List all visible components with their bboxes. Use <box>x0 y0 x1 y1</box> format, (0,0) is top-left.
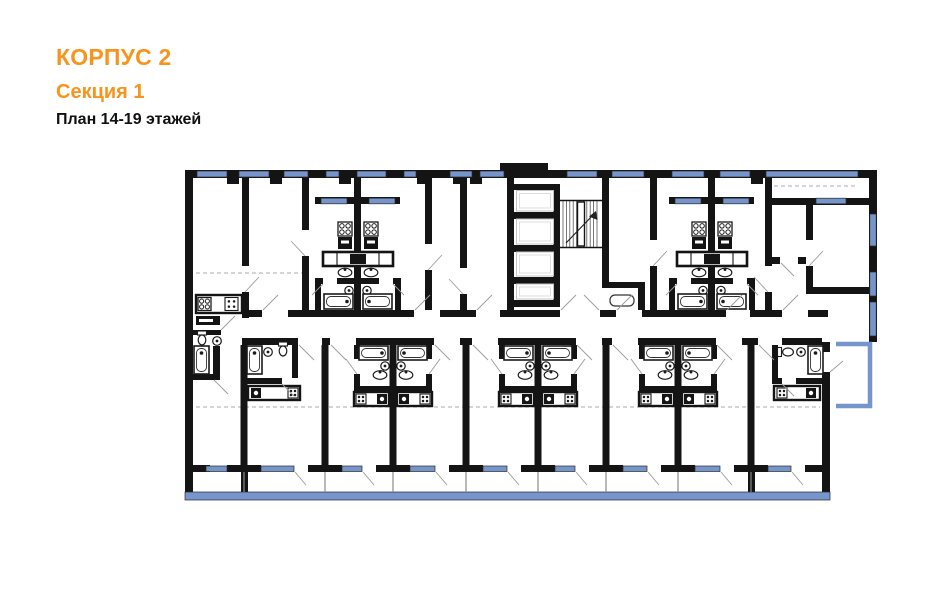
window <box>623 466 647 472</box>
wall <box>661 465 695 472</box>
wall <box>270 178 282 184</box>
wall <box>417 178 429 184</box>
sink-icon <box>518 371 532 380</box>
window <box>483 466 507 472</box>
wall <box>748 345 755 465</box>
bathtub-icon <box>683 346 712 360</box>
door-swing <box>436 472 447 485</box>
sink-icon <box>364 268 378 277</box>
wall <box>470 178 482 184</box>
window <box>555 466 575 472</box>
wall <box>356 338 434 345</box>
wall <box>514 277 556 284</box>
wall <box>805 465 822 472</box>
window <box>870 214 876 246</box>
wall <box>806 287 877 294</box>
window <box>410 466 435 472</box>
door-swing <box>792 472 803 485</box>
wall <box>675 345 682 465</box>
wall <box>449 465 483 472</box>
bathtub-icon <box>194 346 209 374</box>
door-swing <box>561 295 576 310</box>
window <box>675 198 701 204</box>
wall <box>772 378 782 384</box>
staircase-icon <box>560 201 602 248</box>
wall <box>460 178 467 268</box>
door-swing <box>291 241 305 256</box>
elevator-shaft <box>517 284 554 299</box>
wall <box>602 282 645 288</box>
door-swing <box>717 345 732 360</box>
wall <box>808 310 828 317</box>
kitchen-counter <box>774 386 820 400</box>
wall <box>460 294 467 310</box>
door-swing <box>584 295 599 310</box>
wall <box>500 163 548 171</box>
kitchen-counter <box>196 295 242 325</box>
wall <box>602 178 609 282</box>
sink-icon <box>373 371 387 380</box>
elevator-shaft <box>517 191 554 212</box>
door-swing <box>363 472 374 485</box>
bathtub-icon <box>543 346 572 360</box>
wall <box>498 338 576 345</box>
toilet-icon <box>778 348 794 357</box>
washing-machine-icon <box>542 362 550 370</box>
door-swing <box>428 255 442 270</box>
window <box>816 198 846 204</box>
window <box>357 171 386 177</box>
wall <box>425 178 432 244</box>
washing-machine-icon <box>397 362 405 370</box>
window <box>284 171 308 177</box>
window <box>197 171 227 177</box>
bathtub-icon <box>678 294 707 309</box>
door-swing <box>429 359 440 374</box>
wall <box>453 178 465 184</box>
wall <box>806 266 813 287</box>
door-swing <box>653 251 667 266</box>
door-swing <box>491 359 502 374</box>
sink-icon <box>544 371 558 380</box>
door-swing <box>714 359 725 374</box>
bathtub-icon <box>359 346 388 360</box>
wall <box>463 345 470 465</box>
wall <box>242 338 298 345</box>
wall <box>322 345 329 465</box>
bathtub-icon <box>504 346 533 360</box>
door-swing <box>631 359 642 374</box>
wall <box>213 346 220 374</box>
door-swing <box>435 345 450 360</box>
wall <box>288 310 414 317</box>
wall <box>514 300 556 307</box>
wall <box>751 178 763 184</box>
wall <box>600 310 616 317</box>
window <box>870 302 876 336</box>
balcony-outline <box>836 344 870 406</box>
wall <box>242 178 249 266</box>
door-swing <box>508 472 519 485</box>
window <box>672 171 704 177</box>
wall <box>782 338 822 345</box>
door-swing <box>648 472 659 485</box>
window <box>695 466 720 472</box>
washing-machine-icon <box>682 362 690 370</box>
wall <box>642 310 726 317</box>
wall <box>796 378 822 384</box>
washing-machine-icon <box>526 362 534 370</box>
wall <box>339 178 351 184</box>
floor-plan <box>0 0 941 600</box>
wall <box>500 310 560 317</box>
sink-icon <box>718 268 732 277</box>
page: КОРПУС 2 Секция 1 План 14-19 этажей <box>0 0 941 600</box>
door-swing <box>263 295 278 310</box>
wall <box>650 178 657 240</box>
bathtub-icon <box>247 346 262 374</box>
sink-icon <box>399 371 413 380</box>
window <box>239 171 269 177</box>
door-swing <box>473 345 488 360</box>
elevator-shaft <box>517 219 554 244</box>
wall <box>185 170 193 500</box>
wall <box>521 465 555 472</box>
sink-icon <box>797 348 806 357</box>
door-swing <box>299 345 314 360</box>
bathtub-icon <box>717 294 746 309</box>
wall <box>460 338 472 345</box>
wall <box>742 338 758 345</box>
door-swing <box>759 345 774 360</box>
window <box>369 198 395 204</box>
door-swing <box>295 472 306 485</box>
wall <box>772 257 780 264</box>
window <box>326 171 339 177</box>
sink-icon <box>213 337 222 346</box>
wall <box>390 345 397 465</box>
wall <box>302 178 309 230</box>
window <box>206 466 227 472</box>
door-swing <box>576 472 587 485</box>
door-swing <box>449 279 463 294</box>
wall <box>227 178 239 184</box>
door-swing <box>754 277 768 292</box>
wall <box>603 345 610 465</box>
door-swing <box>221 316 235 330</box>
window <box>723 198 749 204</box>
wall <box>638 338 716 345</box>
door-swing <box>214 380 228 394</box>
window <box>261 466 294 472</box>
door-swing <box>781 263 794 276</box>
wall <box>589 465 623 472</box>
sink-icon <box>658 371 672 380</box>
sink-icon <box>692 268 706 277</box>
door-swing <box>613 345 628 360</box>
window <box>720 171 750 177</box>
wall <box>227 465 261 472</box>
door-swing <box>245 277 259 292</box>
window <box>870 272 876 296</box>
wall <box>535 345 542 465</box>
kitchen-counter <box>323 252 393 266</box>
kitchen-counter <box>677 252 747 266</box>
wall <box>765 292 772 310</box>
window <box>567 171 597 177</box>
wall <box>242 310 262 317</box>
window <box>480 171 504 177</box>
window <box>450 171 472 177</box>
wall <box>650 266 657 310</box>
window <box>342 466 362 472</box>
wall <box>602 338 612 345</box>
wall <box>822 372 830 500</box>
door-swing <box>577 345 592 360</box>
door-swing <box>574 359 585 374</box>
door-swing <box>783 295 798 310</box>
wall <box>440 310 476 317</box>
sink-icon <box>338 268 352 277</box>
washing-machine-icon <box>666 362 674 370</box>
wall <box>765 178 772 266</box>
bathtub-icon <box>324 294 353 309</box>
bathtub-icon <box>808 346 823 374</box>
wall <box>514 212 556 219</box>
wall <box>806 205 813 240</box>
wall <box>514 245 556 252</box>
elevator-shaft <box>517 252 554 276</box>
window <box>404 171 416 177</box>
sink-icon <box>264 348 273 357</box>
bathtub-icon <box>398 346 427 360</box>
wall <box>302 256 309 310</box>
door-swing <box>830 361 843 372</box>
toilet-icon <box>198 331 207 345</box>
wall <box>750 310 782 317</box>
wall <box>734 465 768 472</box>
toilet-icon <box>279 342 288 356</box>
door-swing <box>809 251 823 266</box>
wall <box>376 465 410 472</box>
window <box>321 198 347 204</box>
wall <box>244 378 282 384</box>
wall <box>425 270 432 310</box>
sink-icon <box>684 371 698 380</box>
walls <box>185 163 877 500</box>
window <box>768 466 791 472</box>
wall <box>638 288 645 310</box>
door-swing <box>346 359 357 374</box>
window <box>766 171 858 177</box>
wall <box>308 465 342 472</box>
bathtub-icon <box>644 346 673 360</box>
wall <box>193 374 220 380</box>
door-swing <box>331 345 346 360</box>
door-swing <box>721 472 732 485</box>
kitchen-counter <box>248 386 300 400</box>
washing-machine-icon <box>381 362 389 370</box>
window-band <box>185 492 830 500</box>
wall <box>292 345 298 378</box>
wall <box>322 338 330 345</box>
wall <box>798 257 806 264</box>
window <box>612 171 644 177</box>
wall <box>514 184 556 190</box>
bathtub-icon <box>363 294 392 309</box>
wall <box>507 178 514 310</box>
door-swing <box>477 295 492 310</box>
